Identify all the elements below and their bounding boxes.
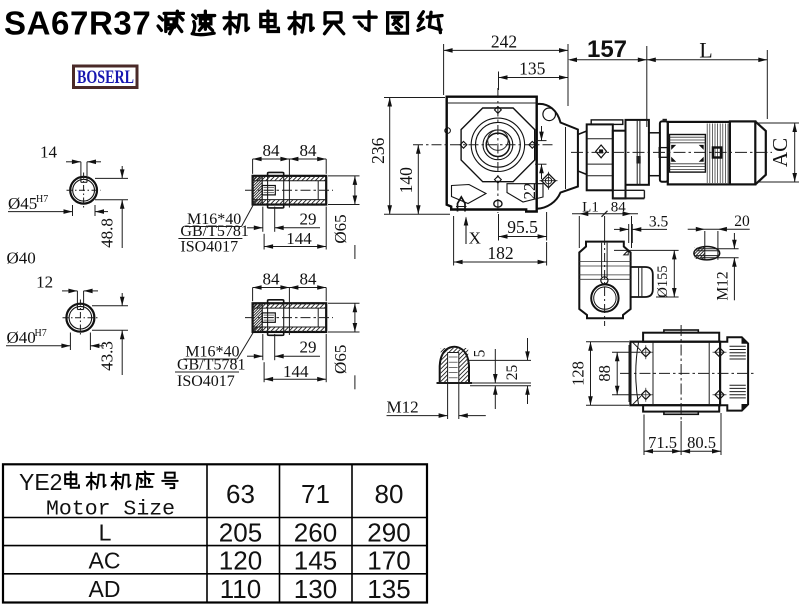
- svg-text:84: 84: [263, 269, 281, 288]
- svg-text:88: 88: [595, 365, 614, 382]
- svg-text:Ø45: Ø45: [8, 194, 37, 213]
- svg-text:135: 135: [367, 574, 410, 604]
- svg-text:YE2: YE2: [19, 469, 62, 495]
- svg-text:145: 145: [294, 546, 337, 576]
- svg-text:L1: L1: [582, 199, 599, 215]
- svg-text:110: 110: [220, 574, 261, 604]
- svg-text:84: 84: [300, 141, 318, 160]
- svg-text:H7: H7: [36, 194, 48, 205]
- svg-text:29: 29: [300, 209, 317, 228]
- svg-text:170: 170: [367, 546, 410, 576]
- svg-text:48.8: 48.8: [98, 218, 117, 248]
- svg-text:84: 84: [611, 199, 627, 215]
- svg-text:140: 140: [396, 167, 416, 194]
- svg-text:AD: AD: [89, 576, 121, 602]
- svg-text:71: 71: [301, 479, 330, 509]
- svg-text:135: 135: [519, 58, 546, 78]
- svg-text:71.5: 71.5: [648, 433, 677, 452]
- svg-text:128: 128: [568, 361, 587, 386]
- svg-text:AC: AC: [89, 548, 121, 574]
- svg-text:157: 157: [587, 36, 627, 63]
- svg-text:3.5: 3.5: [649, 213, 669, 230]
- svg-text:GB/T5781: GB/T5781: [180, 223, 248, 240]
- svg-text:BOSERL: BOSERL: [77, 67, 134, 88]
- svg-text:L: L: [699, 38, 712, 63]
- svg-text:205: 205: [219, 518, 262, 548]
- svg-text:SA67R37: SA67R37: [4, 5, 151, 42]
- svg-text:M12: M12: [387, 398, 419, 417]
- svg-text:182: 182: [487, 243, 513, 263]
- svg-text:120: 120: [219, 546, 262, 576]
- svg-text:144: 144: [283, 362, 309, 381]
- svg-text:Ø40: Ø40: [7, 328, 36, 347]
- svg-text:14: 14: [40, 143, 58, 162]
- svg-text:242: 242: [491, 32, 517, 52]
- svg-text:290: 290: [367, 518, 410, 548]
- svg-text:144: 144: [286, 229, 312, 248]
- svg-text:H7: H7: [35, 328, 47, 339]
- svg-text:29: 29: [300, 338, 317, 357]
- svg-text:95.5: 95.5: [507, 217, 538, 237]
- svg-text:84: 84: [300, 269, 318, 288]
- svg-text:236: 236: [368, 137, 388, 164]
- svg-text:Motor Size: Motor Size: [46, 498, 175, 522]
- svg-text:20: 20: [734, 213, 750, 230]
- svg-text:Ø155: Ø155: [655, 265, 671, 297]
- svg-text:X: X: [469, 229, 481, 248]
- svg-text:Ø65: Ø65: [331, 345, 350, 374]
- svg-text:L: L: [99, 520, 112, 546]
- svg-text:260: 260: [294, 518, 337, 548]
- svg-text:Ø65: Ø65: [331, 214, 350, 243]
- svg-text:130: 130: [294, 574, 337, 604]
- svg-text:ISO4017: ISO4017: [177, 373, 235, 390]
- svg-text:ISO4017: ISO4017: [180, 239, 238, 256]
- svg-text:84: 84: [263, 141, 281, 160]
- svg-text:M12: M12: [715, 271, 732, 300]
- svg-text:25: 25: [504, 365, 521, 381]
- svg-text:Ø40: Ø40: [7, 249, 36, 268]
- svg-text:5: 5: [472, 349, 489, 357]
- svg-text:AC: AC: [768, 138, 792, 167]
- svg-text:80: 80: [375, 479, 404, 509]
- svg-text:22: 22: [520, 183, 539, 200]
- svg-text:80.5: 80.5: [687, 433, 716, 452]
- svg-text:63: 63: [226, 479, 255, 509]
- svg-text:12: 12: [36, 273, 53, 292]
